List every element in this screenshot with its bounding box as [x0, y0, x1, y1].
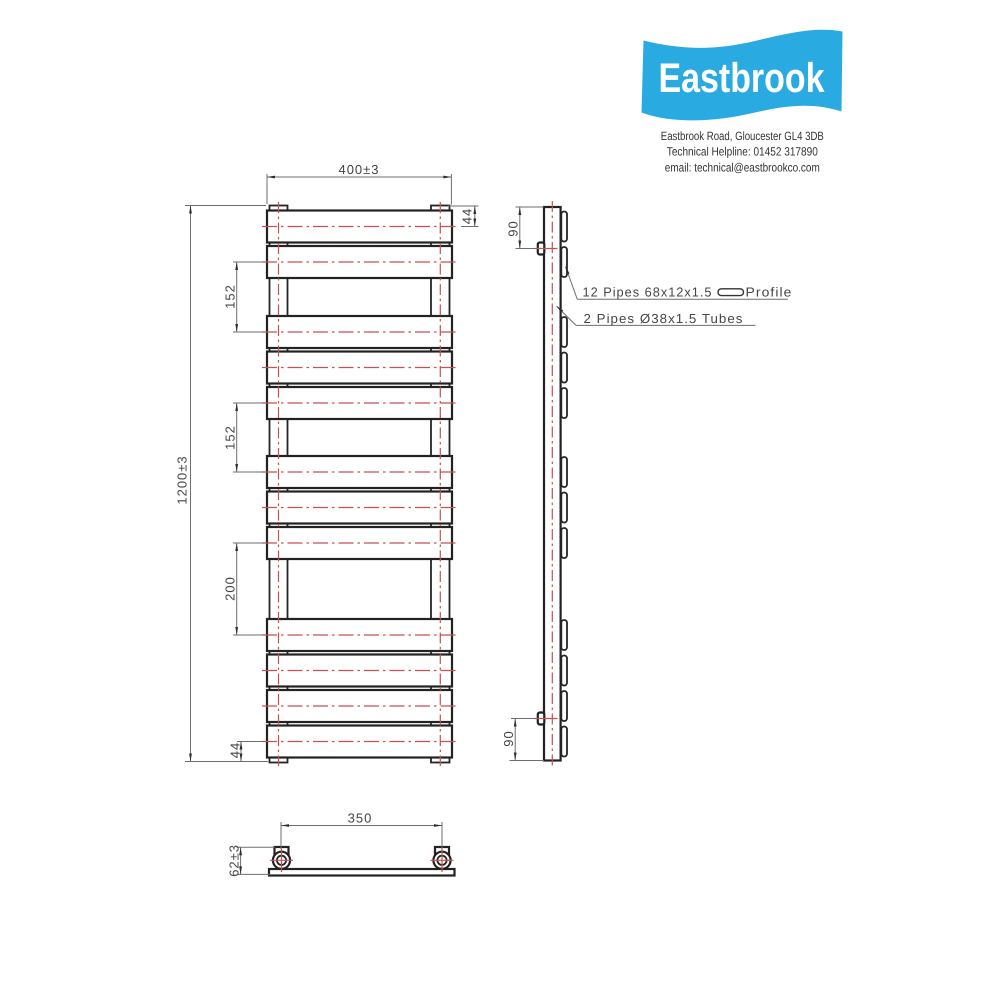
svg-text:400±3: 400±3 — [338, 162, 379, 177]
svg-text:2 Pipes Ø38x1.5 Tubes: 2 Pipes Ø38x1.5 Tubes — [584, 311, 744, 326]
svg-text:Technical Helpline: 01452 3178: Technical Helpline: 01452 317890 — [667, 145, 818, 159]
svg-text:152: 152 — [223, 425, 238, 450]
svg-text:152: 152 — [223, 284, 238, 309]
svg-text:1200±3: 1200±3 — [175, 455, 190, 504]
svg-text:200: 200 — [223, 576, 238, 601]
svg-text:Eastbrook: Eastbrook — [659, 54, 826, 101]
svg-text:350: 350 — [348, 811, 373, 826]
svg-text:90: 90 — [506, 220, 521, 236]
svg-text:email: technical@eastbrookco.c: email: technical@eastbrookco.com — [665, 160, 820, 174]
svg-text:12 Pipes 68x12x1.5: 12 Pipes 68x12x1.5 — [583, 285, 713, 300]
svg-text:44: 44 — [460, 208, 475, 224]
svg-text:Profile: Profile — [746, 285, 793, 300]
svg-text:62±3: 62±3 — [227, 844, 242, 877]
svg-text:90: 90 — [501, 730, 516, 746]
svg-text:44: 44 — [228, 742, 243, 758]
svg-text:Eastbrook Road, Gloucester GL4: Eastbrook Road, Gloucester GL4 3DB — [661, 129, 824, 143]
